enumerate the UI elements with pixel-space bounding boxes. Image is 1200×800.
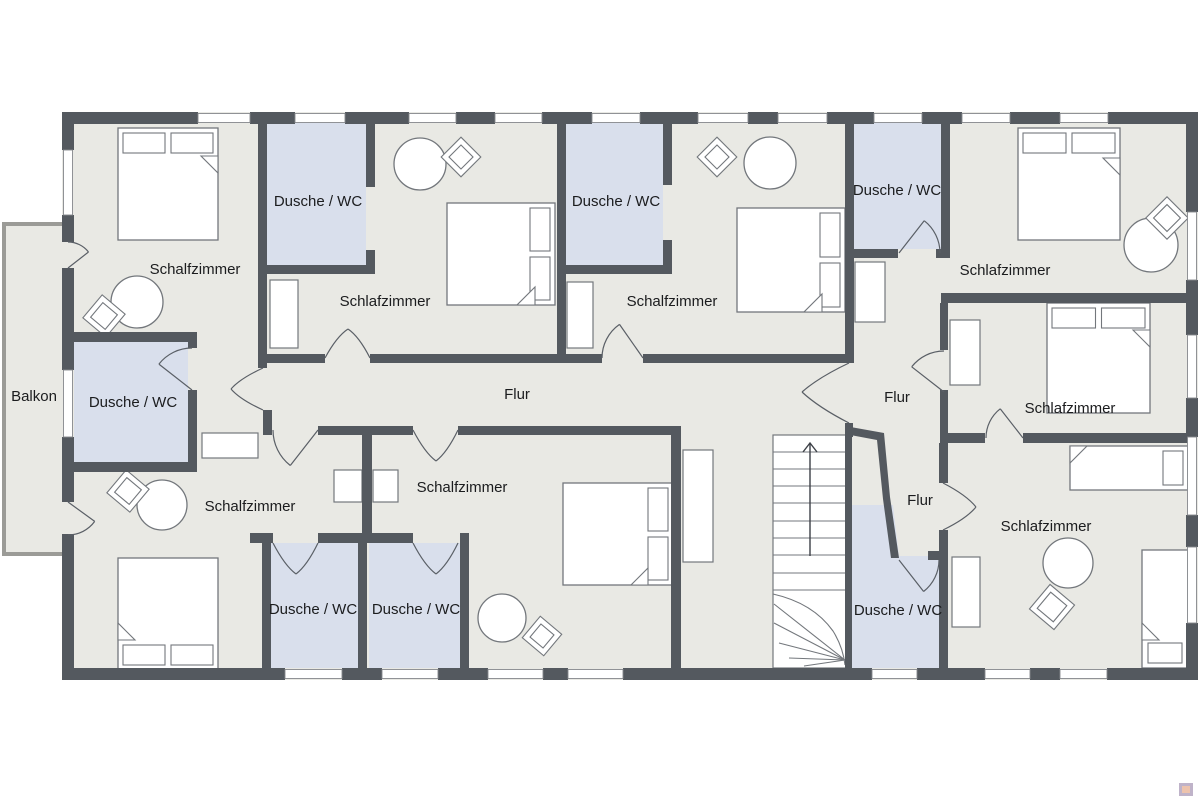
outer-wall-segment [1107, 668, 1198, 680]
balcony-wall [2, 222, 6, 556]
room-label: Schlafzimmer [1025, 400, 1116, 417]
outer-wall-segment [62, 215, 74, 242]
cabinet-icon [950, 320, 980, 385]
wall-segment [643, 354, 847, 363]
pillow-icon [1102, 308, 1146, 328]
wall-segment [366, 112, 375, 187]
wall-segment [263, 410, 272, 435]
room-label: Flur [907, 492, 933, 509]
wall-segment [663, 112, 672, 185]
window [698, 114, 748, 123]
window [985, 670, 1030, 679]
window [872, 670, 917, 679]
pillow-icon [820, 263, 840, 307]
window [1060, 114, 1108, 123]
outer-wall-segment [623, 668, 872, 680]
outer-wall-segment [1186, 398, 1198, 437]
room-label: Dusche / WC [854, 602, 943, 619]
window [1188, 212, 1197, 280]
window [874, 114, 922, 123]
outer-wall-segment [62, 534, 74, 668]
round-table-icon [394, 138, 446, 190]
wall-segment [557, 112, 566, 363]
wall-segment [939, 443, 948, 483]
room-label: Schalfzimmer [627, 293, 718, 310]
wall-segment [267, 354, 325, 363]
wall-segment [939, 530, 948, 668]
outer-wall-segment [542, 112, 592, 124]
cabinet-icon [334, 470, 362, 502]
round-table-icon [744, 137, 796, 189]
outer-wall-segment [345, 112, 409, 124]
window [488, 670, 543, 679]
room-label: Flur [504, 386, 530, 403]
room-label: Dusche / WC [269, 601, 358, 618]
watermark-icon [1182, 786, 1190, 793]
wall-segment [258, 112, 267, 368]
window [295, 114, 345, 123]
wall-segment [671, 426, 681, 672]
room-label: Schlafzimmer [340, 293, 431, 310]
pillow-icon [1072, 133, 1115, 153]
window [1188, 437, 1197, 515]
outer-wall-segment [1108, 112, 1198, 124]
outer-wall-segment [456, 112, 495, 124]
wall-segment [62, 462, 197, 472]
outer-wall-segment [62, 268, 74, 370]
round-table-icon [478, 594, 526, 642]
window [592, 114, 640, 123]
wall-segment [940, 303, 948, 350]
window [198, 114, 250, 123]
outer-wall-segment [748, 112, 778, 124]
outer-wall-segment [543, 668, 568, 680]
window [382, 670, 438, 679]
wall-segment [845, 249, 898, 258]
room-label: Dusche / WC [853, 182, 942, 199]
cabinet-icon [683, 450, 713, 562]
window [495, 114, 542, 123]
wall-segment [458, 426, 671, 435]
room-label: Schalfzimmer [417, 479, 508, 496]
pillow-icon [648, 488, 668, 531]
outer-wall-segment [1186, 112, 1198, 212]
wall-segment [370, 354, 557, 363]
window [1188, 547, 1197, 623]
wall-segment [566, 354, 602, 363]
pillow-icon [1163, 451, 1183, 485]
outer-wall-segment [438, 668, 488, 680]
wall-segment [460, 533, 469, 668]
round-table-icon [1043, 538, 1093, 588]
balcony-wall [2, 552, 64, 556]
pillow-icon [123, 133, 165, 153]
window [1188, 335, 1197, 398]
cabinet-icon [952, 557, 980, 627]
room-label: Flur [884, 389, 910, 406]
window [285, 670, 342, 679]
pillow-icon [1148, 643, 1182, 663]
room-label: Dusche / WC [274, 193, 363, 210]
floor-plan-canvas: SchalfzimmerDusche / WCSchlafzimmerDusch… [0, 0, 1200, 800]
wall-segment [845, 112, 854, 363]
outer-wall-segment [62, 668, 285, 680]
window [64, 370, 73, 437]
pillow-icon [1052, 308, 1096, 328]
outer-wall-segment [917, 668, 985, 680]
cabinet-icon [373, 470, 398, 502]
room-label: Dusche / WC [372, 601, 461, 618]
room-label: Dusche / WC [89, 394, 178, 411]
pillow-icon [530, 208, 550, 251]
room-label: Balkon [11, 388, 57, 405]
wall-segment [362, 426, 372, 543]
outer-wall-segment [1010, 112, 1060, 124]
wall-segment [557, 265, 672, 274]
window [962, 114, 1010, 123]
wall-segment [62, 332, 197, 342]
window [568, 670, 623, 679]
outer-wall-segment [62, 112, 74, 150]
outer-wall-segment [62, 112, 198, 124]
wall-segment [941, 112, 950, 258]
outer-wall-segment [1186, 515, 1198, 547]
outer-wall-segment [342, 668, 382, 680]
room-label: Schalfzimmer [205, 498, 296, 515]
wall-segment [941, 293, 1188, 303]
cabinet-icon [567, 282, 593, 348]
cabinet-icon [270, 280, 298, 348]
balcony-wall [2, 222, 64, 226]
pillow-icon [171, 133, 213, 153]
wall-segment [358, 533, 367, 668]
pillow-icon [648, 537, 668, 580]
room-label: Schlafzimmer [1001, 518, 1092, 535]
cabinet-icon [202, 433, 258, 458]
window [1060, 670, 1107, 679]
floorplan-page: SchalfzimmerDusche / WCSchlafzimmerDusch… [0, 0, 1200, 800]
outer-wall-segment [1186, 623, 1198, 680]
wall-segment [940, 390, 948, 433]
wall-segment [188, 332, 197, 348]
wall-segment [928, 551, 939, 560]
pillow-icon [171, 645, 213, 665]
outer-wall-segment [1186, 280, 1198, 335]
pillow-icon [820, 213, 840, 257]
window [778, 114, 827, 123]
wall-segment [1023, 433, 1188, 443]
outer-wall-segment [1030, 668, 1060, 680]
room-label: Schlafzimmer [960, 262, 1051, 279]
cabinet-icon [855, 262, 885, 322]
room-label: Dusche / WC [572, 193, 661, 210]
wall-segment [258, 265, 375, 274]
window [64, 150, 73, 215]
wall-segment [188, 390, 197, 472]
wall-segment [940, 433, 985, 443]
pillow-icon [1023, 133, 1066, 153]
wall-segment [845, 434, 852, 668]
window [409, 114, 456, 123]
pillow-icon [123, 645, 165, 665]
room-label: Schalfzimmer [150, 261, 241, 278]
outer-wall-segment [250, 112, 295, 124]
